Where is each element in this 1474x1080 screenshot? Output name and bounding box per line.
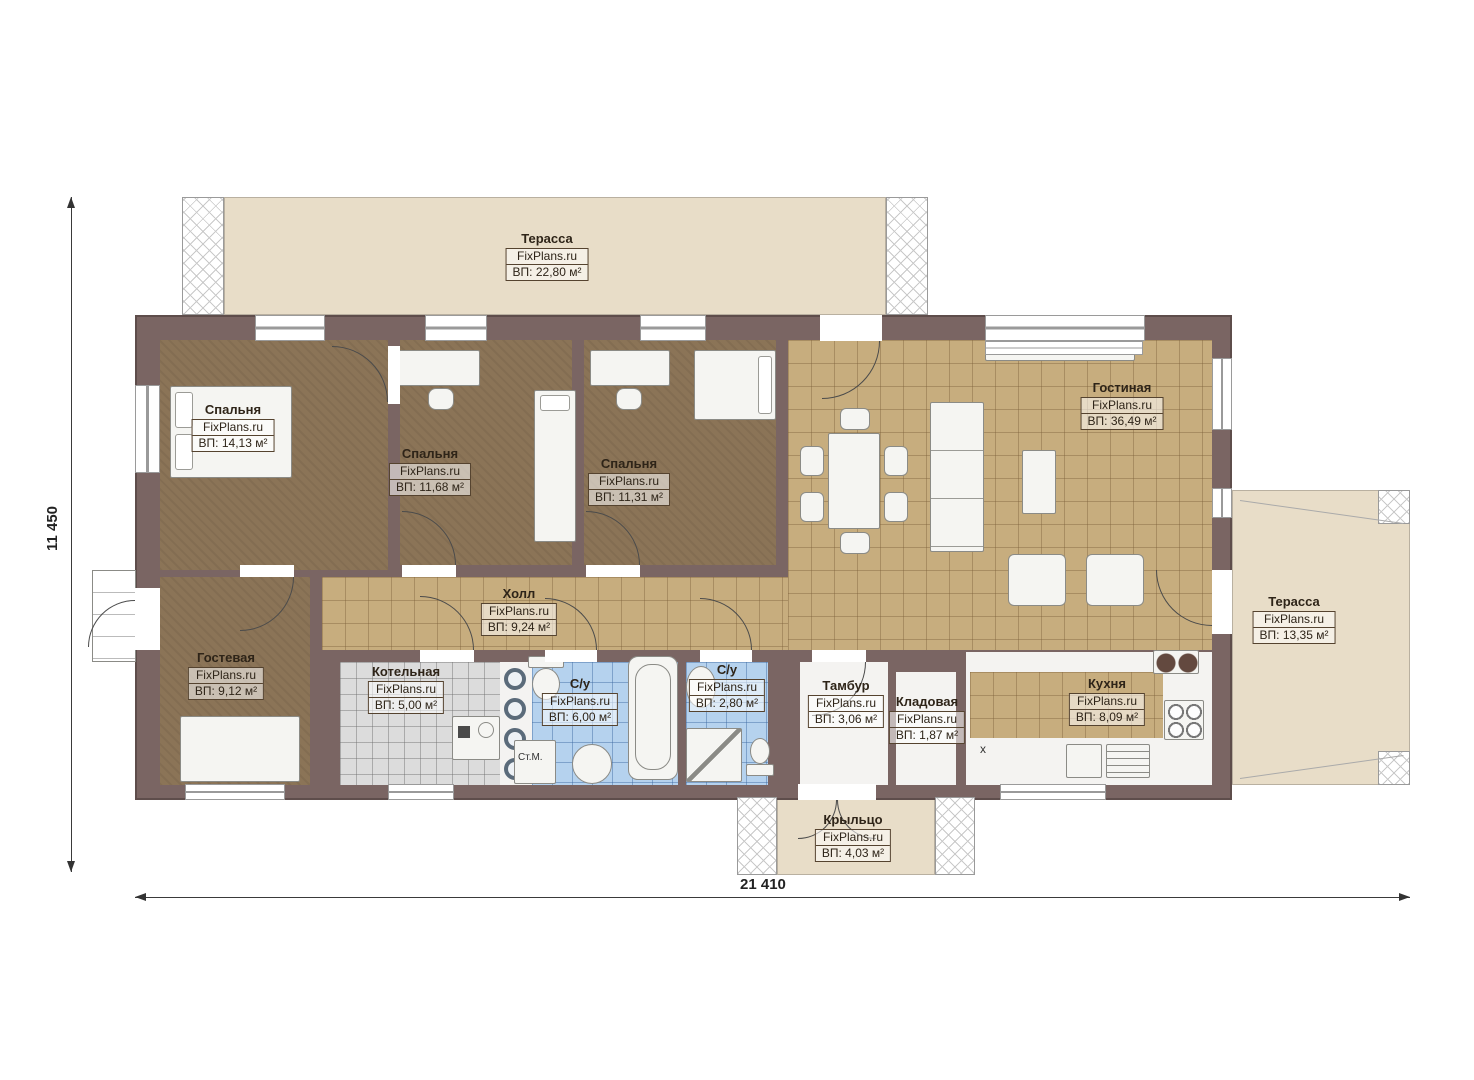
armchair: [1008, 554, 1066, 606]
door-opening: [402, 565, 456, 577]
washing-machine-label: Ст.М.: [518, 752, 543, 763]
room-area: ВП: 1,87 м²: [890, 728, 964, 743]
room-area: ВП: 11,31 м²: [589, 490, 669, 505]
window: [640, 315, 706, 341]
chair: [840, 408, 870, 430]
pillow: [175, 392, 193, 428]
dimension-line-vertical: [71, 197, 72, 872]
entrance-door-opening: [135, 588, 160, 650]
room-label-box: FixPlans.ru ВП: 3,06 м²: [808, 695, 884, 728]
porch-door-opening: [798, 784, 876, 800]
kitchen-mark: x: [980, 742, 986, 756]
dimension-arrow-top: [67, 197, 75, 208]
pillow: [758, 356, 772, 414]
brand-watermark: FixPlans.ru: [482, 604, 556, 620]
room-area: ВП: 2,80 м²: [690, 696, 764, 711]
window: [425, 315, 487, 341]
room-label-porch: Крыльцо FixPlans.ru ВП: 4,03 м²: [815, 812, 891, 862]
window: [135, 385, 160, 473]
brand-watermark: FixPlans.ru: [890, 712, 964, 728]
room-label-bathroom-2: С/у FixPlans.ru ВП: 2,80 м²: [689, 662, 765, 712]
brand-watermark: FixPlans.ru: [589, 474, 669, 490]
room-label-guest: Гостевая FixPlans.ru ВП: 9,12 м²: [188, 650, 264, 700]
room-area: ВП: 9,24 м²: [482, 620, 556, 635]
window: [1212, 358, 1232, 430]
terrace-top-pillar-left: [182, 197, 224, 315]
boiler-panel: [458, 726, 470, 738]
room-label-terrace-right: Терасса FixPlans.ru ВП: 13,35 м²: [1253, 594, 1336, 644]
height-dimension-label: 11 450: [44, 506, 61, 551]
boiler-equipment: [452, 716, 500, 760]
room-name: Спальня: [192, 402, 275, 417]
room-name: Кухня: [1069, 676, 1145, 691]
bed: [534, 390, 576, 542]
dimension-arrow-right: [1399, 893, 1410, 901]
brand-watermark: FixPlans.ru: [809, 696, 883, 712]
room-label-box: FixPlans.ru ВП: 4,03 м²: [815, 829, 891, 862]
dimension-arrow-bottom: [67, 861, 75, 872]
room-name: Котельная: [368, 664, 444, 679]
room-label-box: FixPlans.ru ВП: 2,80 м²: [689, 679, 765, 712]
brand-watermark: FixPlans.ru: [1254, 612, 1335, 628]
brand-watermark: FixPlans.ru: [390, 464, 470, 480]
dishwasher: [1066, 744, 1102, 778]
room-name: С/у: [542, 676, 618, 691]
room-name: Гостиная: [1081, 380, 1164, 395]
water-heater: [504, 698, 526, 720]
window: [388, 784, 454, 800]
window: [185, 784, 285, 800]
fridge: [1106, 744, 1150, 778]
room-name: Холл: [481, 586, 557, 601]
boiler-dial: [478, 722, 494, 738]
room-area: ВП: 14,13 м²: [193, 436, 274, 451]
room-name: Тамбур: [808, 678, 884, 693]
room-label-living: Гостиная FixPlans.ru ВП: 36,49 м²: [1081, 380, 1164, 430]
brand-watermark: FixPlans.ru: [193, 420, 274, 436]
room-label-box: FixPlans.ru ВП: 14,13 м²: [192, 419, 275, 452]
door-opening: [700, 650, 752, 662]
room-area: ВП: 13,35 м²: [1254, 628, 1335, 643]
brand-watermark: FixPlans.ru: [1082, 398, 1163, 414]
terrace-top-pillar-right: [886, 197, 928, 315]
brand-watermark: FixPlans.ru: [1070, 694, 1144, 710]
chair: [800, 446, 824, 476]
room-label-box: FixPlans.ru ВП: 9,24 м²: [481, 603, 557, 636]
room-area: ВП: 22,80 м²: [507, 265, 588, 280]
room-label-box: FixPlans.ru ВП: 13,35 м²: [1253, 611, 1336, 644]
door-opening: [545, 650, 597, 662]
room-label-boiler: Котельная FixPlans.ru ВП: 5,00 м²: [368, 664, 444, 714]
room-name: Кладовая: [889, 694, 965, 709]
shower: [686, 728, 742, 782]
room-area: ВП: 6,00 м²: [543, 710, 617, 725]
door-opening: [812, 650, 866, 662]
room-name: Терасса: [506, 231, 589, 246]
room-label-box: FixPlans.ru ВП: 6,00 м²: [542, 693, 618, 726]
room-label-box: FixPlans.ru ВП: 36,49 м²: [1081, 397, 1164, 430]
room-name: Спальня: [389, 446, 471, 461]
floor-plan-canvas: 11 450 21 410: [0, 0, 1474, 1080]
room-label-kitchen: Кухня FixPlans.ru ВП: 8,09 м²: [1069, 676, 1145, 726]
room-label-box: FixPlans.ru ВП: 11,68 м²: [389, 463, 471, 496]
pillow: [540, 395, 570, 411]
room-label-hall: Холл FixPlans.ru ВП: 9,24 м²: [481, 586, 557, 636]
toilet-bowl: [750, 738, 770, 764]
room-label-box: FixPlans.ru ВП: 22,80 м²: [506, 248, 589, 281]
chair: [616, 388, 642, 410]
door-opening: [420, 650, 474, 662]
room-label-box: FixPlans.ru ВП: 5,00 м²: [368, 681, 444, 714]
room-area: ВП: 9,12 м²: [189, 684, 263, 699]
brand-watermark: FixPlans.ru: [369, 682, 443, 698]
dimension-arrow-left: [135, 893, 146, 901]
room-label-vestibule: Тамбур FixPlans.ru ВП: 3,06 м²: [808, 678, 884, 728]
dining-table: [828, 433, 880, 529]
brand-watermark: FixPlans.ru: [543, 694, 617, 710]
door-opening: [388, 346, 400, 404]
room-label-bathroom-1: С/у FixPlans.ru ВП: 6,00 м²: [542, 676, 618, 726]
room-name: С/у: [689, 662, 765, 677]
sink: [572, 744, 612, 784]
brand-watermark: FixPlans.ru: [816, 830, 890, 846]
room-name: Терасса: [1253, 594, 1336, 609]
room-label-box: FixPlans.ru ВП: 9,12 м²: [188, 667, 264, 700]
porch-pillar-right: [935, 797, 975, 875]
room-area: ВП: 11,68 м²: [390, 480, 470, 495]
terrace-door-opening: [820, 315, 882, 341]
sofa: [180, 716, 300, 782]
chair: [884, 492, 908, 522]
room-area: ВП: 3,06 м²: [809, 712, 883, 727]
room-label-terrace-top: Терасса FixPlans.ru ВП: 22,80 м²: [506, 231, 589, 281]
brand-watermark: FixPlans.ru: [507, 249, 588, 265]
room-label-bedroom-1: Спальня FixPlans.ru ВП: 14,13 м²: [192, 402, 275, 452]
room-label-bedroom-2: Спальня FixPlans.ru ВП: 11,68 м²: [389, 446, 471, 496]
chair: [884, 446, 908, 476]
armchair: [1086, 554, 1144, 606]
room-label-box: FixPlans.ru ВП: 11,31 м²: [588, 473, 670, 506]
room-label-box: FixPlans.ru ВП: 1,87 м²: [889, 711, 965, 744]
chair: [840, 532, 870, 554]
room-label-storage: Кладовая FixPlans.ru ВП: 1,87 м²: [889, 694, 965, 744]
terrace-right-door-opening: [1212, 570, 1232, 634]
kitchen-sink: [1153, 650, 1199, 674]
room-area: ВП: 8,09 м²: [1070, 710, 1144, 725]
toilet-tank: [746, 764, 774, 776]
window: [1212, 488, 1232, 518]
window: [1000, 784, 1106, 800]
brand-watermark: FixPlans.ru: [189, 668, 263, 684]
room-label-box: FixPlans.ru ВП: 8,09 м²: [1069, 693, 1145, 726]
coffee-table: [1022, 450, 1056, 514]
width-dimension-label: 21 410: [740, 876, 786, 893]
sofa: [930, 402, 984, 552]
dimension-line-horizontal: [135, 897, 1410, 898]
porch-pillar-left: [737, 797, 777, 875]
door-opening: [586, 565, 640, 577]
chair: [428, 388, 454, 410]
pillow: [175, 434, 193, 470]
room-area: ВП: 4,03 м²: [816, 846, 890, 861]
room-name: Гостевая: [188, 650, 264, 665]
door-opening: [240, 565, 294, 577]
room-area: ВП: 36,49 м²: [1082, 414, 1163, 429]
room-area: ВП: 5,00 м²: [369, 698, 443, 713]
bathtub-basin: [635, 664, 671, 770]
water-heater: [504, 668, 526, 690]
chair: [800, 492, 824, 522]
room-name: Спальня: [588, 456, 670, 471]
desk: [398, 350, 480, 386]
brand-watermark: FixPlans.ru: [690, 680, 764, 696]
window-sill: [985, 341, 1143, 355]
stove: [1164, 700, 1204, 740]
window: [255, 315, 325, 341]
window: [985, 315, 1145, 341]
desk: [590, 350, 670, 386]
terrace-right-pillar-top: [1378, 490, 1410, 524]
room-label-bedroom-3: Спальня FixPlans.ru ВП: 11,31 м²: [588, 456, 670, 506]
room-name: Крыльцо: [815, 812, 891, 827]
